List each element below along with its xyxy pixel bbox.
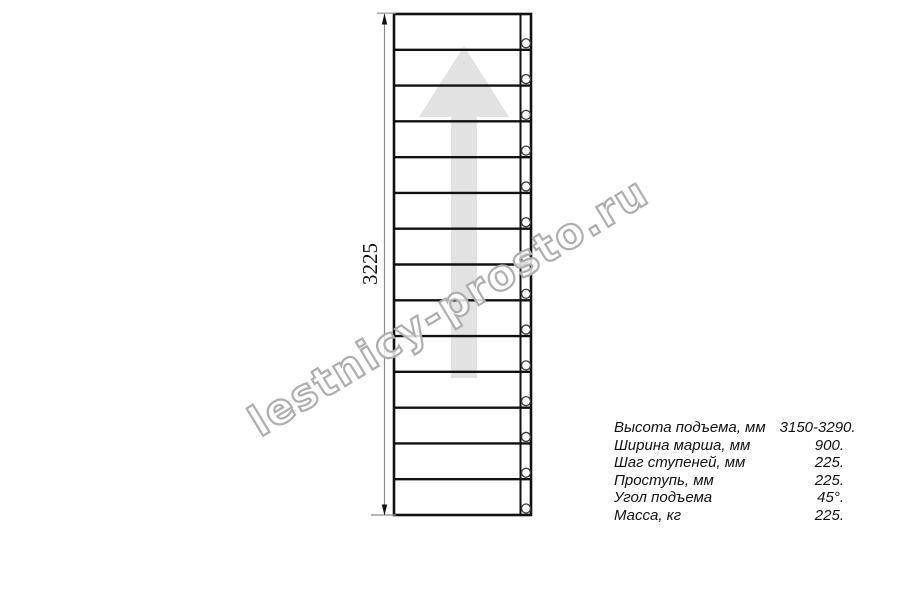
dimension-label: 3225 [358, 243, 382, 285]
spec-value: 225. [801, 454, 844, 472]
spec-label: Угол подъема [614, 489, 712, 507]
spec-label: Шаг ступеней, мм [614, 454, 745, 472]
bolt-circle [522, 325, 531, 334]
spec-row: Угол подъема45°. [614, 489, 844, 507]
bolt-circle [522, 39, 531, 48]
bolt-circle [522, 397, 531, 406]
dimension-arrow-top [382, 14, 387, 25]
spec-row: Масса, кг225. [614, 507, 844, 525]
spec-value: 45°. [803, 489, 844, 507]
spec-label: Ширина марша, мм [614, 437, 750, 455]
bolt-circle [522, 468, 531, 477]
bolt-circle [522, 75, 531, 84]
dimension-arrow-bottom [382, 505, 387, 516]
bolt-circle [522, 218, 531, 227]
spec-label: Проступь, мм [614, 472, 714, 490]
spec-table: Высота подъема, мм3150-3290.Ширина марша… [614, 419, 844, 524]
bolt-circle [522, 289, 531, 298]
spec-label: Высота подъема, мм [614, 419, 766, 437]
spec-value: 225. [801, 472, 844, 490]
spec-row: Высота подъема, мм3150-3290. [614, 419, 844, 437]
bolt-circle [522, 504, 531, 513]
spec-row: Проступь, мм225. [614, 472, 844, 490]
spec-row: Шаг ступеней, мм225. [614, 454, 844, 472]
bolt-circle [522, 146, 531, 155]
watermark: lestnicy-prosto.ru [240, 167, 657, 446]
bolt-circle [522, 432, 531, 441]
spec-label: Масса, кг [614, 507, 681, 525]
bolt-circle [522, 361, 531, 370]
dimension: 3225 [358, 13, 396, 515]
spec-row: Ширина марша, мм900. [614, 437, 844, 455]
bolt-circle [522, 110, 531, 119]
drawing-canvas: 3225 lestnicy-prosto.ru Высота подъема, … [0, 0, 900, 600]
bolt-circle [522, 182, 531, 191]
spec-value: 225. [801, 507, 844, 525]
spec-value: 3150-3290. [766, 419, 856, 437]
spec-value: 900. [801, 437, 844, 455]
